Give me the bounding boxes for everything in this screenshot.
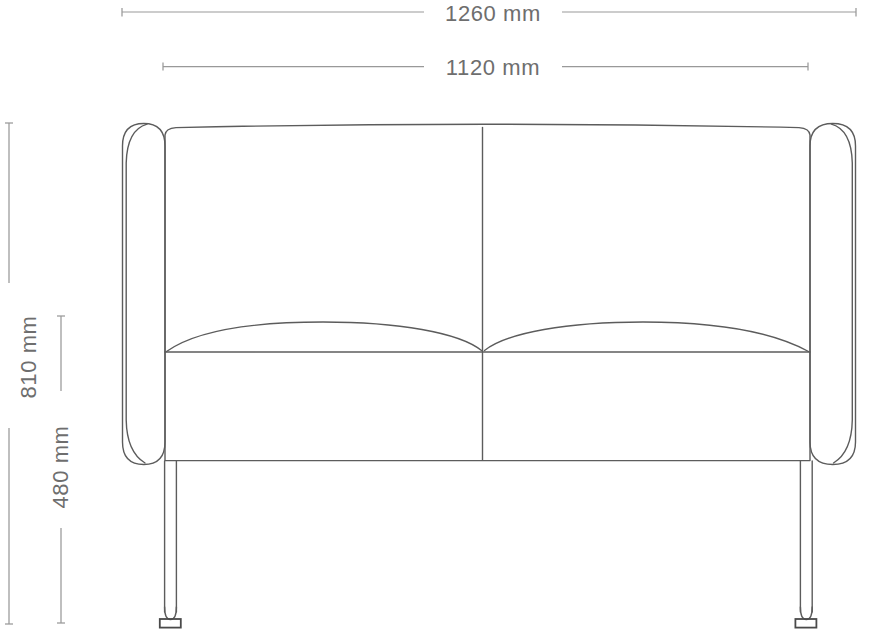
foot-glide-right [795, 619, 816, 628]
sofa-body-outline [165, 124, 810, 460]
armrest-right-contour-line [832, 124, 853, 463]
inner-width-label: 1120 mm [446, 57, 540, 79]
sofa-outline-group [123, 124, 856, 620]
leg-right-rounded-end [800, 607, 812, 620]
leg-left-rounded-end [165, 607, 177, 620]
armrest-left-contour-line [126, 124, 147, 463]
seat-cushion-left [167, 322, 482, 352]
overall-width-label: 1260 mm [445, 3, 541, 25]
armrest-left [123, 124, 166, 465]
sofa-dimension-diagram: 1260 mm 1120 mm 810 mm 480 mm [0, 0, 874, 631]
sofa-drawing [0, 0, 874, 631]
seat-cushion-right [485, 322, 809, 352]
foot-glide-left [160, 619, 181, 628]
seat-height-label: 480 mm [50, 425, 72, 508]
dim-lines-group [5, 8, 856, 624]
armrest-right [810, 124, 856, 465]
overall-height-label: 810 mm [18, 315, 40, 398]
foot-glides-group [160, 619, 817, 628]
